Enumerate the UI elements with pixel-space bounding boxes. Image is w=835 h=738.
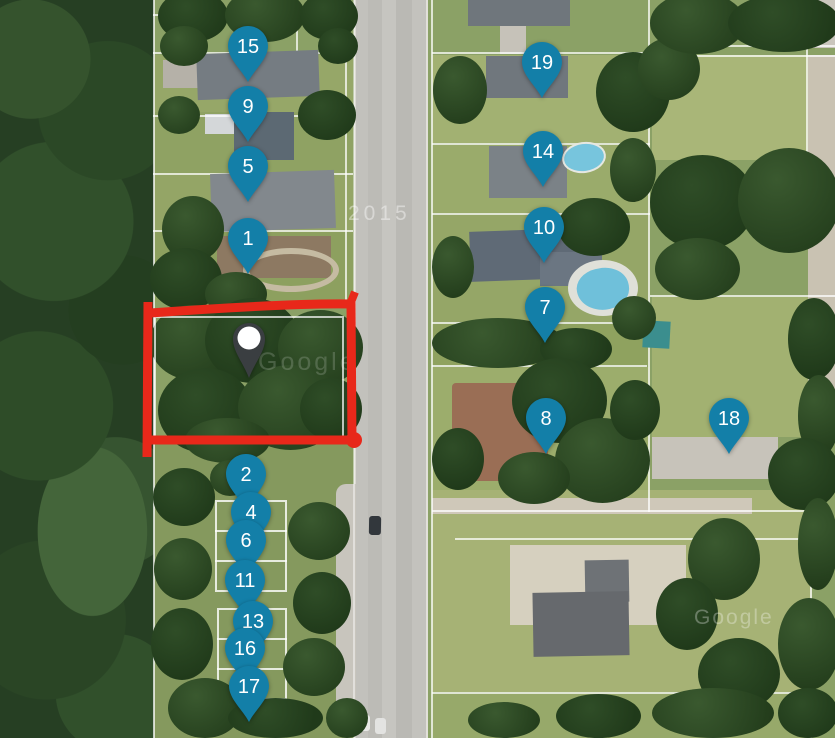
svg-text:16: 16 [234,638,256,660]
svg-text:7: 7 [539,297,550,319]
map-marker-7[interactable]: 7 [523,286,567,344]
svg-text:9: 9 [242,96,253,118]
svg-text:14: 14 [532,141,554,163]
svg-text:6: 6 [240,530,251,552]
highlight-rectangle [0,0,835,738]
svg-text:1: 1 [242,228,253,250]
svg-text:2: 2 [240,464,251,486]
svg-text:18: 18 [718,408,740,430]
map-marker-5[interactable]: 5 [226,145,270,203]
map-marker-10[interactable]: 10 [522,206,566,264]
svg-text:15: 15 [237,36,259,58]
map-marker-18[interactable]: 18 [707,397,751,455]
map-marker-15[interactable]: 15 [226,25,270,83]
selected-location-pin[interactable] [231,322,267,380]
aerial-map[interactable]: 2015 Google Google 159511914107818246111… [0,0,835,738]
svg-text:17: 17 [238,676,260,698]
map-marker-17[interactable]: 17 [227,665,271,723]
svg-text:19: 19 [531,52,553,74]
map-marker-1[interactable]: 1 [226,217,270,275]
map-marker-19[interactable]: 19 [520,41,564,99]
map-marker-9[interactable]: 9 [226,85,270,143]
svg-text:8: 8 [540,408,551,430]
red-marker-blob [346,432,362,448]
map-marker-14[interactable]: 14 [521,130,565,188]
svg-text:5: 5 [242,156,253,178]
svg-text:10: 10 [533,217,555,239]
svg-text:11: 11 [235,570,256,592]
map-marker-8[interactable]: 8 [524,397,568,455]
